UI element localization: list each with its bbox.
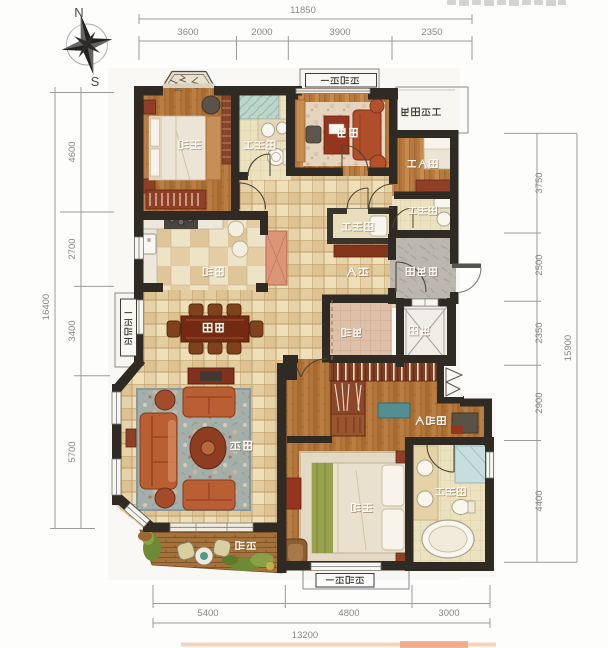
svg-text:3900: 3900 [329,27,350,38]
svg-text:2000: 2000 [251,27,272,38]
svg-text:5400: 5400 [197,608,218,619]
svg-text:15900: 15900 [563,335,574,361]
svg-text:11850: 11850 [290,5,316,16]
svg-text:5700: 5700 [67,441,78,462]
svg-text:2900: 2900 [534,392,545,413]
svg-text:4800: 4800 [338,608,359,619]
svg-text:3750: 3750 [534,172,545,193]
svg-text:2350: 2350 [534,322,545,343]
svg-text:S: S [91,74,100,89]
svg-text:4600: 4600 [67,141,78,162]
svg-text:2700: 2700 [67,238,78,259]
svg-text:2350: 2350 [421,27,442,38]
svg-text:3000: 3000 [438,608,459,619]
svg-text:2500: 2500 [534,254,545,275]
svg-text:16400: 16400 [41,294,52,320]
svg-text:13200: 13200 [292,630,318,641]
svg-text:4400: 4400 [534,490,545,511]
svg-text:3600: 3600 [177,27,198,38]
svg-text:N: N [74,5,83,20]
svg-text:3400: 3400 [67,320,78,341]
